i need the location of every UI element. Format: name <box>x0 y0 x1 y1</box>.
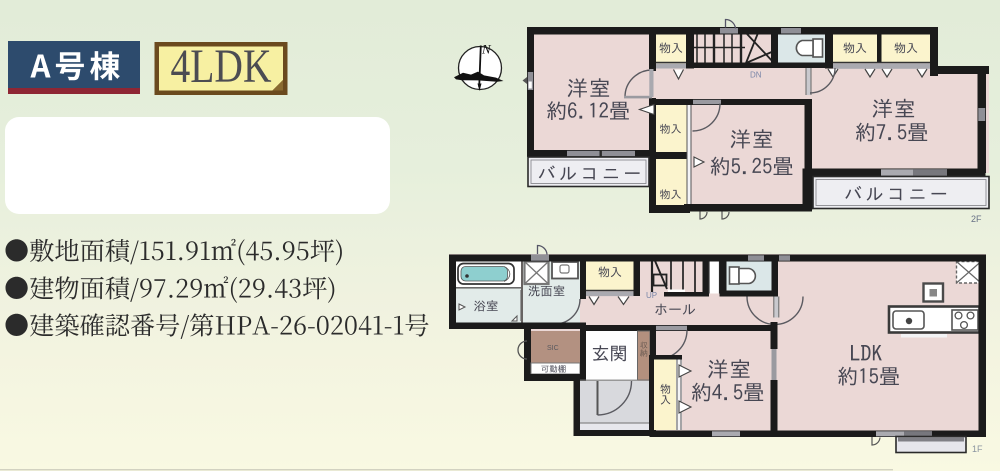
svg-text:UP: UP <box>646 291 657 300</box>
svg-text:DN: DN <box>750 71 762 80</box>
svg-text:2F: 2F <box>971 214 982 224</box>
svg-text:SIC: SIC <box>547 345 559 352</box>
svg-text:1F: 1F <box>972 444 983 454</box>
svg-text:4LDK: 4LDK <box>171 40 272 93</box>
svg-text:N: N <box>481 42 492 57</box>
